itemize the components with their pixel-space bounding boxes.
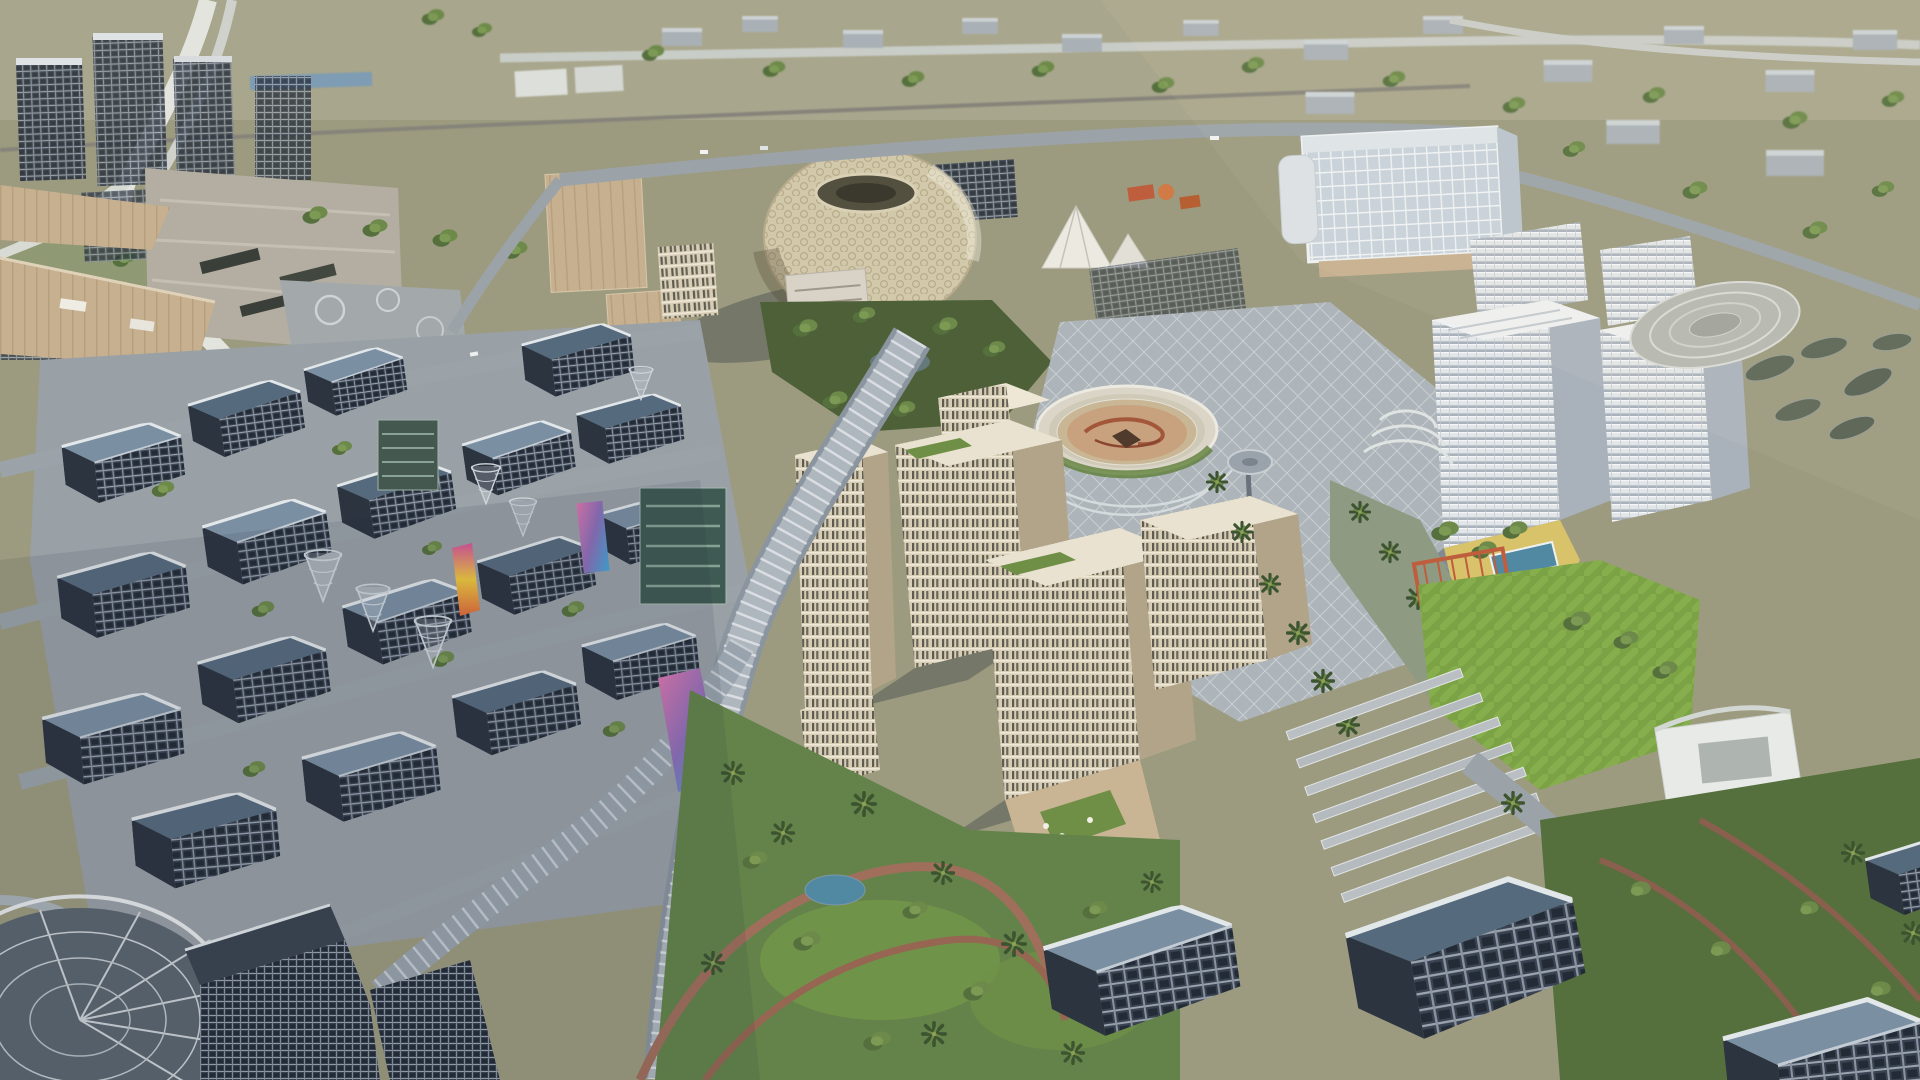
tower-roof <box>93 33 163 40</box>
dome-crown-core <box>836 183 896 203</box>
lawn-patch <box>760 900 1000 1020</box>
masterplan-scene: Aerial rendering of a mixed-use expo mas… <box>0 0 1920 1080</box>
distant-block <box>1062 34 1102 52</box>
palm-tree <box>1313 671 1334 692</box>
palm-tree <box>1063 1043 1084 1064</box>
tower <box>255 76 311 180</box>
garden-pond <box>805 875 865 905</box>
palm-tree <box>1350 502 1369 521</box>
palm-tree <box>1380 542 1399 561</box>
palm-tree <box>1288 623 1309 644</box>
green-glass-tower <box>378 420 438 490</box>
vehicle <box>700 150 708 154</box>
tower <box>173 57 235 177</box>
white-shed <box>514 69 567 98</box>
distant-block <box>662 28 702 46</box>
distant-block <box>742 16 778 32</box>
shade-grade-overlay <box>0 480 760 1080</box>
distant-block <box>962 18 998 34</box>
aerial-rendering-image: Aerial rendering of a mixed-use expo mas… <box>0 0 1920 1080</box>
palm-tree <box>933 863 954 884</box>
tower-roof <box>16 58 82 65</box>
tower <box>16 59 86 181</box>
palm-tree <box>773 823 794 844</box>
tower <box>92 34 167 186</box>
roof-panel <box>1698 736 1772 783</box>
palm-tree <box>1260 574 1279 593</box>
palm-tree <box>1207 472 1226 491</box>
palm-tree <box>1003 933 1025 955</box>
palm-tree <box>1503 793 1524 814</box>
palm-tree <box>923 1023 945 1045</box>
vehicle <box>760 146 768 150</box>
beige-midrise <box>658 243 719 319</box>
tower-roof <box>174 56 232 62</box>
orange-structure <box>1158 184 1174 200</box>
palm-tree <box>853 793 875 815</box>
distant-block <box>843 30 883 48</box>
palm-tree <box>1142 872 1161 891</box>
umbrella <box>1043 823 1049 829</box>
palm-tree <box>1843 843 1864 864</box>
white-shed <box>574 65 623 93</box>
umbrella <box>1087 817 1093 823</box>
observation-pylon-hole <box>1242 458 1258 466</box>
palm-tree <box>1232 522 1251 541</box>
